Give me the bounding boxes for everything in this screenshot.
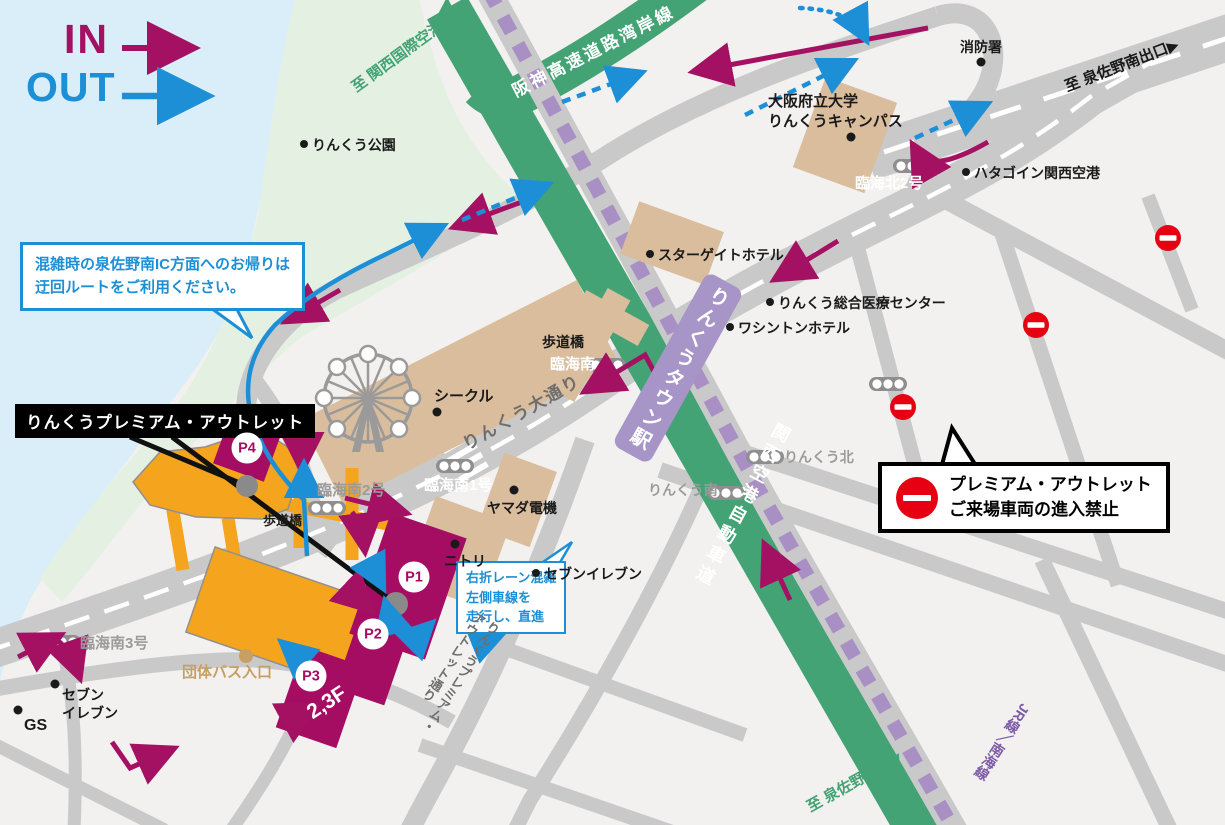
poi-univ-line1: 大阪府立大学 <box>768 92 903 112</box>
no-entry-line1: プレミアム・アウトレット <box>949 473 1152 498</box>
poi-hodokyo-2: 歩道橋 <box>263 513 302 530</box>
bus-entrance-dot <box>239 649 253 663</box>
poi-medical: りんくう総合医療センター <box>766 294 946 312</box>
in-label: IN <box>64 16 109 63</box>
poi-stargate: スターゲイトホテル <box>646 246 784 264</box>
poi-seven-eleven-2: セブン イレブン <box>62 686 118 722</box>
outlet-name-label: りんくうプレミアム・アウトレット <box>15 404 315 438</box>
no-entry-line2: ご来場車両の進入禁止 <box>949 498 1152 523</box>
intersection-rinkai-minami1: 臨海南1号 <box>424 476 492 496</box>
lane-line2: 左側車線を <box>466 588 556 608</box>
poi-univ-line2: りんくうキャンパス <box>768 112 903 132</box>
poi-gs: GS <box>24 716 47 737</box>
poi-rinku-park: りんくう公園 <box>300 136 396 154</box>
poi-seven-eleven-1: セブンイレブン <box>532 565 642 583</box>
intersection-rinkai-minami: 臨海南 <box>550 355 595 375</box>
poi-fire-station: 消防署 <box>960 38 1002 56</box>
poi-yamada: ヤマダ電機 <box>487 499 557 517</box>
access-map: IN OUT 混雑時の泉佐野南IC方面へのお帰りは 迂回ルートをご利用ください。… <box>0 0 1225 825</box>
parking-p1-badge: P1 <box>399 562 430 593</box>
parking-p4-badge: P4 <box>232 433 263 464</box>
intersection-rinkai-minami2: 臨海南2号 <box>317 481 385 501</box>
out-label: OUT <box>26 64 116 111</box>
poi-univ: 大阪府立大学 りんくうキャンパス <box>768 92 903 131</box>
poi-seven2-line1: セブン <box>62 686 118 704</box>
detour-line2: 迂回ルートをご利用ください。 <box>35 276 290 299</box>
poi-hodokyo-1: 歩道橋 <box>542 333 584 351</box>
poi-nitori: ニトリ <box>444 552 486 570</box>
parking-p2-badge: P2 <box>358 619 389 650</box>
no-entry-icon <box>896 477 938 519</box>
ferris-wheel-icon <box>316 346 420 452</box>
intersection-rinkai-minami3: 臨海南3号 <box>80 634 148 654</box>
poi-seven2-line2: イレブン <box>62 704 118 722</box>
poi-bus-entrance: 団体バス入口 <box>182 663 272 683</box>
detour-line1: 混雑時の泉佐野南IC方面へのお帰りは <box>35 253 290 276</box>
intersection-rinkai-kita2: 臨海北2号 <box>855 174 923 194</box>
poi-washington: ワシントンホテル <box>726 319 850 337</box>
detour-callout: 混雑時の泉佐野南IC方面へのお帰りは 迂回ルートをご利用ください。 <box>20 242 305 311</box>
parking-p3-badge: P3 <box>296 661 327 692</box>
outlet-marker-dot-1 <box>236 475 258 497</box>
intersection-rinku-kita: りんくう北 <box>784 448 854 466</box>
intersection-rinku-minami: りんくう南 <box>648 481 718 499</box>
no-entry-legend: プレミアム・アウトレット ご来場車両の進入禁止 <box>878 462 1170 533</box>
poi-hatago: ハタゴイン関西空港 <box>962 164 1100 182</box>
poi-seacle: シークル <box>434 387 494 407</box>
